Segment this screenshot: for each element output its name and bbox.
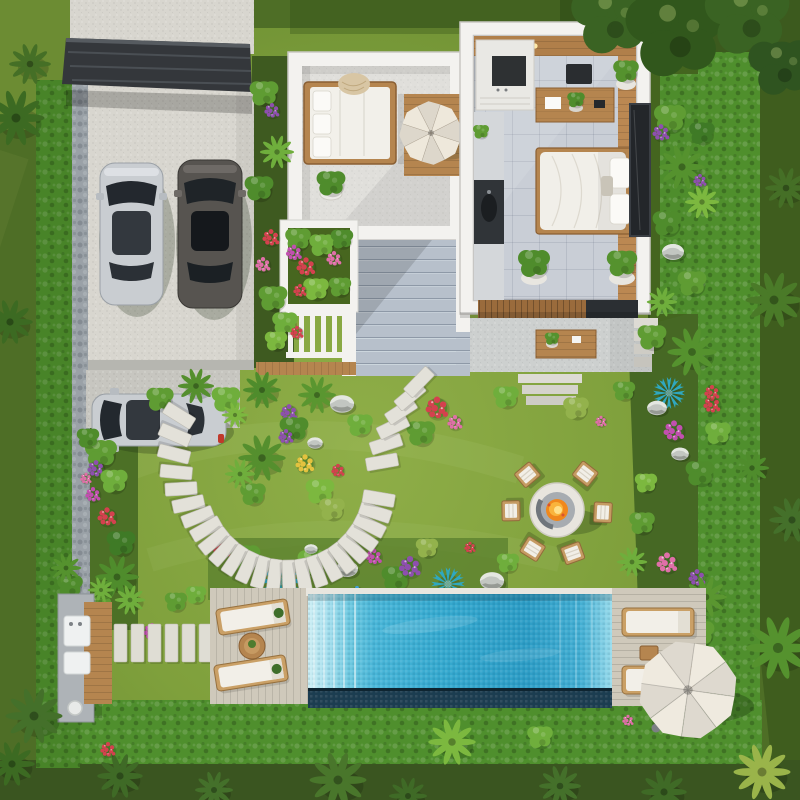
cooker [492,56,526,86]
art-panel [630,104,650,236]
paver [148,624,161,662]
paver [165,624,178,662]
garden-bench [536,330,596,358]
daybed [304,73,408,164]
sink-tray [64,616,90,646]
firepit-chair [502,498,524,521]
pillow [313,137,331,157]
paver [114,624,127,662]
car-windshield [184,178,236,204]
firepit-chair [589,502,612,526]
pillow [313,114,331,134]
sink-basin [481,194,497,222]
car-mirror [96,193,104,200]
throw-blanket [338,73,370,95]
mug [572,336,581,343]
stepping-stone [163,479,198,496]
car-windshield [106,181,157,206]
car-silver-suv [96,163,175,317]
car-windshield [100,400,122,440]
car-dark-sedan [174,160,252,320]
faucet [487,190,491,194]
double-bed [536,148,638,234]
garden-stairs [342,232,470,376]
carport [62,38,252,114]
car-mirror [159,193,167,200]
car-panoramic-roof [112,211,151,255]
stool [68,701,82,715]
paver [131,624,144,662]
prep-tray [64,652,90,674]
stepping-stone [158,461,193,480]
car-taillight [218,434,224,443]
table-plant [248,640,256,648]
car-sunroof [191,211,229,251]
laptop [594,100,605,108]
throw-pillow [601,176,613,196]
sun-lounger [622,608,697,639]
aerial-villa-render: Top-down aerial 3D render of a modern wh… [0,0,800,800]
pillow [610,194,630,224]
swimming-pool [306,588,614,708]
pillow [313,91,331,111]
paver [182,624,195,662]
outdoor-kitchen-bench [58,594,112,722]
pool-deck-left [210,588,310,704]
speaker [566,64,592,84]
papers [545,97,561,109]
scene-canvas: Top-down aerial 3D render of a modern wh… [0,0,800,800]
